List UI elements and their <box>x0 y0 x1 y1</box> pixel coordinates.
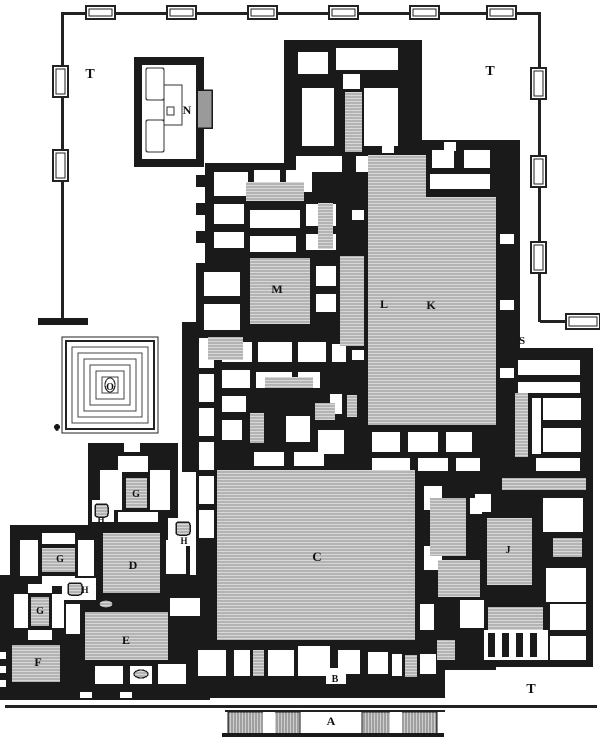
room-label-J: J <box>506 545 511 556</box>
room <box>518 382 580 393</box>
room <box>546 568 586 602</box>
enclosure-tower <box>531 156 546 187</box>
room <box>95 666 123 684</box>
room <box>500 300 514 310</box>
hatched-court <box>488 607 543 630</box>
terrace-edge-line <box>5 705 597 708</box>
enclosure-tower <box>487 6 516 19</box>
room-label-D: D <box>129 558 138 572</box>
pier <box>199 504 214 510</box>
room-label-T: T <box>485 64 495 79</box>
hatched-court <box>438 560 480 597</box>
room <box>250 236 296 252</box>
room <box>268 650 294 676</box>
altar <box>68 583 82 595</box>
hatched-court <box>340 256 364 346</box>
hatched-court <box>502 478 586 490</box>
enclosure-tower <box>248 6 277 19</box>
room <box>372 432 400 452</box>
room <box>372 458 410 471</box>
hatched-court <box>250 413 264 443</box>
room-label-F: F <box>34 655 41 669</box>
room-label-H: H <box>81 585 88 595</box>
pier <box>488 633 495 657</box>
room <box>0 680 6 687</box>
room <box>0 666 6 673</box>
room-label-O: O <box>106 382 114 393</box>
n-building-annex <box>197 90 212 128</box>
enclosure-tower <box>86 6 115 19</box>
ramp-bottom-line <box>222 733 444 737</box>
enclosure-wall-line <box>62 12 540 15</box>
enclosure-tower <box>410 6 439 19</box>
room <box>14 594 28 628</box>
room <box>382 144 394 153</box>
hatched-court <box>246 182 304 201</box>
room <box>392 654 402 676</box>
room-label-B: B <box>332 674 339 685</box>
room <box>214 204 244 224</box>
ramp-gap <box>390 712 402 734</box>
room-label-C: C <box>312 549 321 564</box>
room-label-T: T <box>526 682 536 697</box>
room <box>420 654 436 674</box>
room <box>118 456 148 472</box>
room <box>198 650 226 676</box>
hatched-court <box>208 337 243 360</box>
room <box>222 370 250 388</box>
room <box>444 142 456 151</box>
room-label-M: M <box>271 282 282 296</box>
hatched-court <box>265 377 313 388</box>
altar <box>176 522 190 535</box>
room <box>150 470 170 510</box>
wall-block <box>497 330 520 360</box>
room <box>543 428 581 452</box>
room-label-L: L <box>380 297 388 311</box>
room <box>118 512 158 522</box>
room <box>204 272 240 296</box>
room <box>20 540 38 576</box>
room <box>352 350 364 360</box>
room <box>222 420 242 440</box>
room-label-K: K <box>426 298 436 312</box>
room <box>296 156 342 172</box>
room-label-G: G <box>132 489 140 500</box>
room <box>430 174 490 189</box>
room-label-E: E <box>122 633 130 647</box>
enclosure-tower <box>53 66 68 97</box>
hatched-court <box>315 403 335 420</box>
room <box>536 458 580 471</box>
n-building-cell <box>146 68 164 100</box>
room <box>80 692 92 698</box>
room <box>464 150 490 168</box>
room <box>298 646 330 676</box>
room <box>343 74 360 89</box>
room-label-T: T <box>85 67 95 82</box>
hatched-court <box>345 92 362 152</box>
pier <box>199 436 214 442</box>
room <box>298 342 326 362</box>
enclosure-tower <box>167 6 196 19</box>
room <box>446 432 472 452</box>
room <box>254 452 284 466</box>
wall-block <box>196 231 205 243</box>
room <box>222 396 246 412</box>
enclosure-west-stub <box>38 318 88 325</box>
pier <box>199 368 214 374</box>
room <box>286 416 310 442</box>
room <box>234 650 250 676</box>
pier <box>516 633 523 657</box>
room <box>302 88 334 146</box>
hatched-court <box>430 498 466 556</box>
room <box>550 636 586 660</box>
room <box>316 266 336 286</box>
pier <box>199 470 214 476</box>
room <box>550 604 586 630</box>
hatched-court <box>426 197 496 425</box>
enclosure-tower <box>566 314 600 329</box>
wall-block <box>196 175 205 187</box>
room-label-N: N <box>183 103 192 117</box>
room <box>543 498 583 532</box>
room <box>158 664 186 684</box>
room <box>352 210 364 220</box>
room-label-H: H <box>180 536 187 546</box>
enclosure-tower <box>329 6 358 19</box>
room <box>28 630 52 640</box>
room-label-H: H <box>97 515 104 525</box>
room <box>470 498 482 514</box>
room <box>298 52 328 74</box>
room <box>214 172 248 196</box>
hatched-court <box>253 650 264 676</box>
room <box>214 232 244 248</box>
room-label-S: S <box>519 335 525 347</box>
enclosure-tower <box>531 242 546 273</box>
room <box>408 432 438 452</box>
room <box>432 150 454 168</box>
room <box>500 234 514 244</box>
room <box>66 604 80 634</box>
room <box>316 294 336 312</box>
wall-block <box>196 203 205 215</box>
room-label-A: A <box>327 714 336 728</box>
room <box>543 398 581 420</box>
room <box>518 360 580 375</box>
hatched-court <box>405 655 417 677</box>
pier <box>199 402 214 408</box>
room <box>250 210 300 228</box>
room-label-c: c <box>55 423 59 433</box>
hatched-court <box>515 393 528 457</box>
room <box>364 88 398 146</box>
room <box>204 304 240 330</box>
hatched-court <box>553 538 582 557</box>
room <box>28 584 52 593</box>
room <box>170 598 200 616</box>
hatched-court <box>368 155 426 425</box>
room <box>332 344 346 362</box>
room <box>0 652 6 659</box>
enclosure-tower <box>53 150 68 181</box>
n-building-cell <box>146 120 164 152</box>
room <box>258 342 292 362</box>
room-label-G: G <box>56 554 64 565</box>
altar-oval <box>99 600 113 608</box>
room <box>532 398 541 454</box>
hatched-court <box>347 395 357 417</box>
room <box>418 458 448 471</box>
room <box>456 458 480 471</box>
room <box>78 540 94 576</box>
pier <box>502 633 509 657</box>
room <box>294 452 324 466</box>
room <box>336 48 398 70</box>
room-label-G: G <box>36 606 44 617</box>
altar-oval <box>134 670 148 678</box>
hatched-court <box>318 203 333 249</box>
room <box>420 604 434 630</box>
room <box>124 443 140 452</box>
room <box>42 533 75 544</box>
room <box>500 368 514 378</box>
room <box>460 600 484 628</box>
room <box>318 430 344 454</box>
hatched-court <box>437 640 455 660</box>
floor-plan: TTTNMLKSOcGGGHHHDCJEFBA <box>0 0 600 738</box>
enclosure-tower <box>531 68 546 99</box>
pier <box>530 633 537 657</box>
room <box>120 692 132 698</box>
ramp-gap <box>263 712 275 734</box>
room <box>368 652 388 674</box>
site-plan-page: TTTNMLKSOcGGGHHHDCJEFBA <box>0 0 600 738</box>
